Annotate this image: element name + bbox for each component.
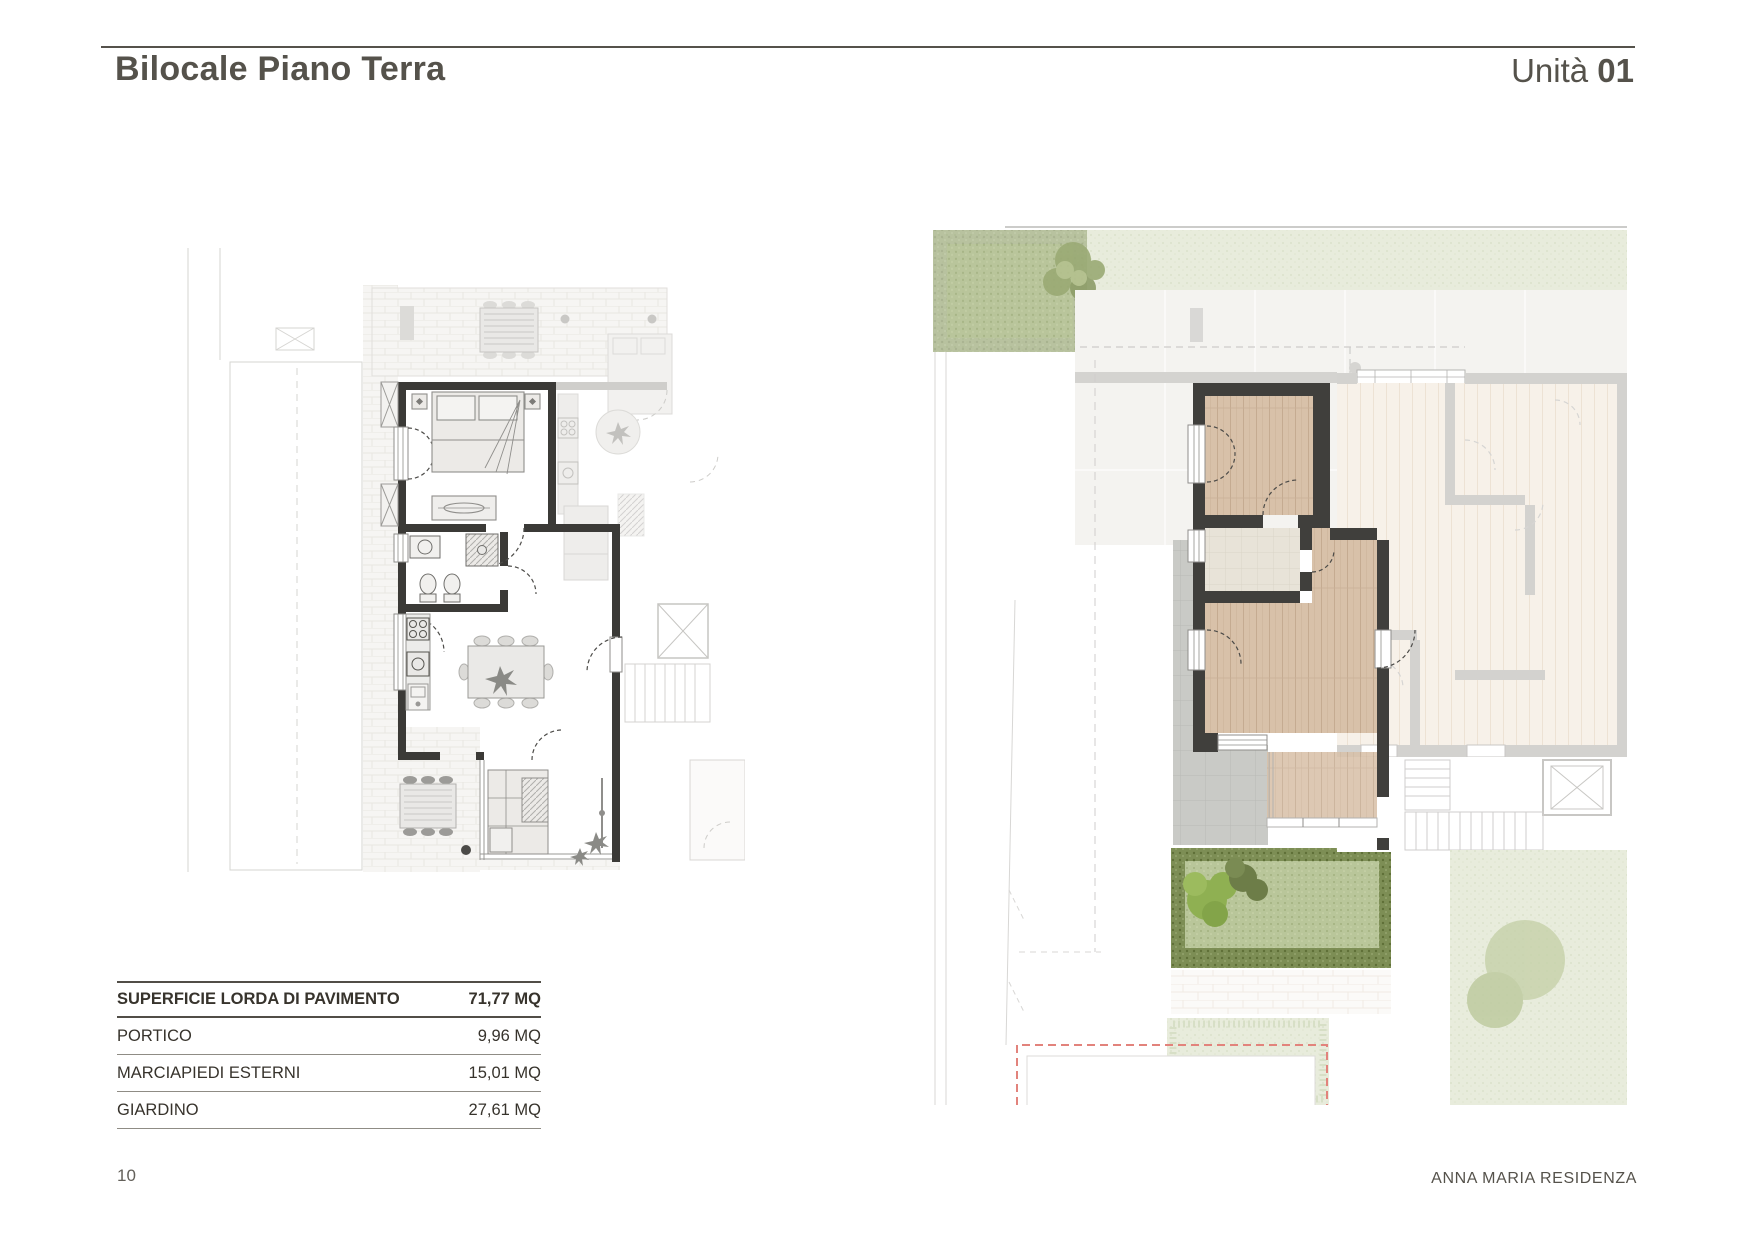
area-value: 9,96 MQ	[478, 1027, 541, 1046]
project-name: ANNA MARIA RESIDENZA	[1431, 1170, 1637, 1188]
area-table: SUPERFICIE LORDA DI PAVIMENTO 71,77 MQ P…	[117, 981, 541, 1129]
area-label: SUPERFICIE LORDA DI PAVIMENTO	[117, 990, 400, 1009]
unit-label: Unità	[1511, 52, 1588, 89]
area-value: 71,77 MQ	[469, 990, 541, 1009]
unit-badge: Unità 01	[1511, 52, 1634, 90]
table-row: MARCIAPIEDI ESTERNI 15,01 MQ	[117, 1055, 541, 1092]
area-value: 15,01 MQ	[469, 1064, 541, 1083]
right-site-plan	[905, 200, 1630, 1105]
left-floor-plan	[170, 222, 745, 877]
table-row: PORTICO 9,96 MQ	[117, 1018, 541, 1055]
page-number: 10	[117, 1166, 136, 1186]
page-title: Bilocale Piano Terra	[115, 50, 445, 89]
header-rule	[101, 46, 1635, 48]
brochure-page: Bilocale Piano Terra Unità 01	[0, 0, 1754, 1241]
area-label: GIARDINO	[117, 1101, 199, 1120]
area-label: PORTICO	[117, 1027, 192, 1046]
table-row: SUPERFICIE LORDA DI PAVIMENTO 71,77 MQ	[117, 981, 541, 1018]
floor-plan-drawing	[170, 222, 745, 877]
area-value: 27,61 MQ	[469, 1101, 541, 1120]
table-row: GIARDINO 27,61 MQ	[117, 1092, 541, 1129]
site-plan-drawing	[905, 200, 1630, 1105]
area-label: MARCIAPIEDI ESTERNI	[117, 1064, 300, 1083]
unit-number: 01	[1597, 52, 1634, 89]
